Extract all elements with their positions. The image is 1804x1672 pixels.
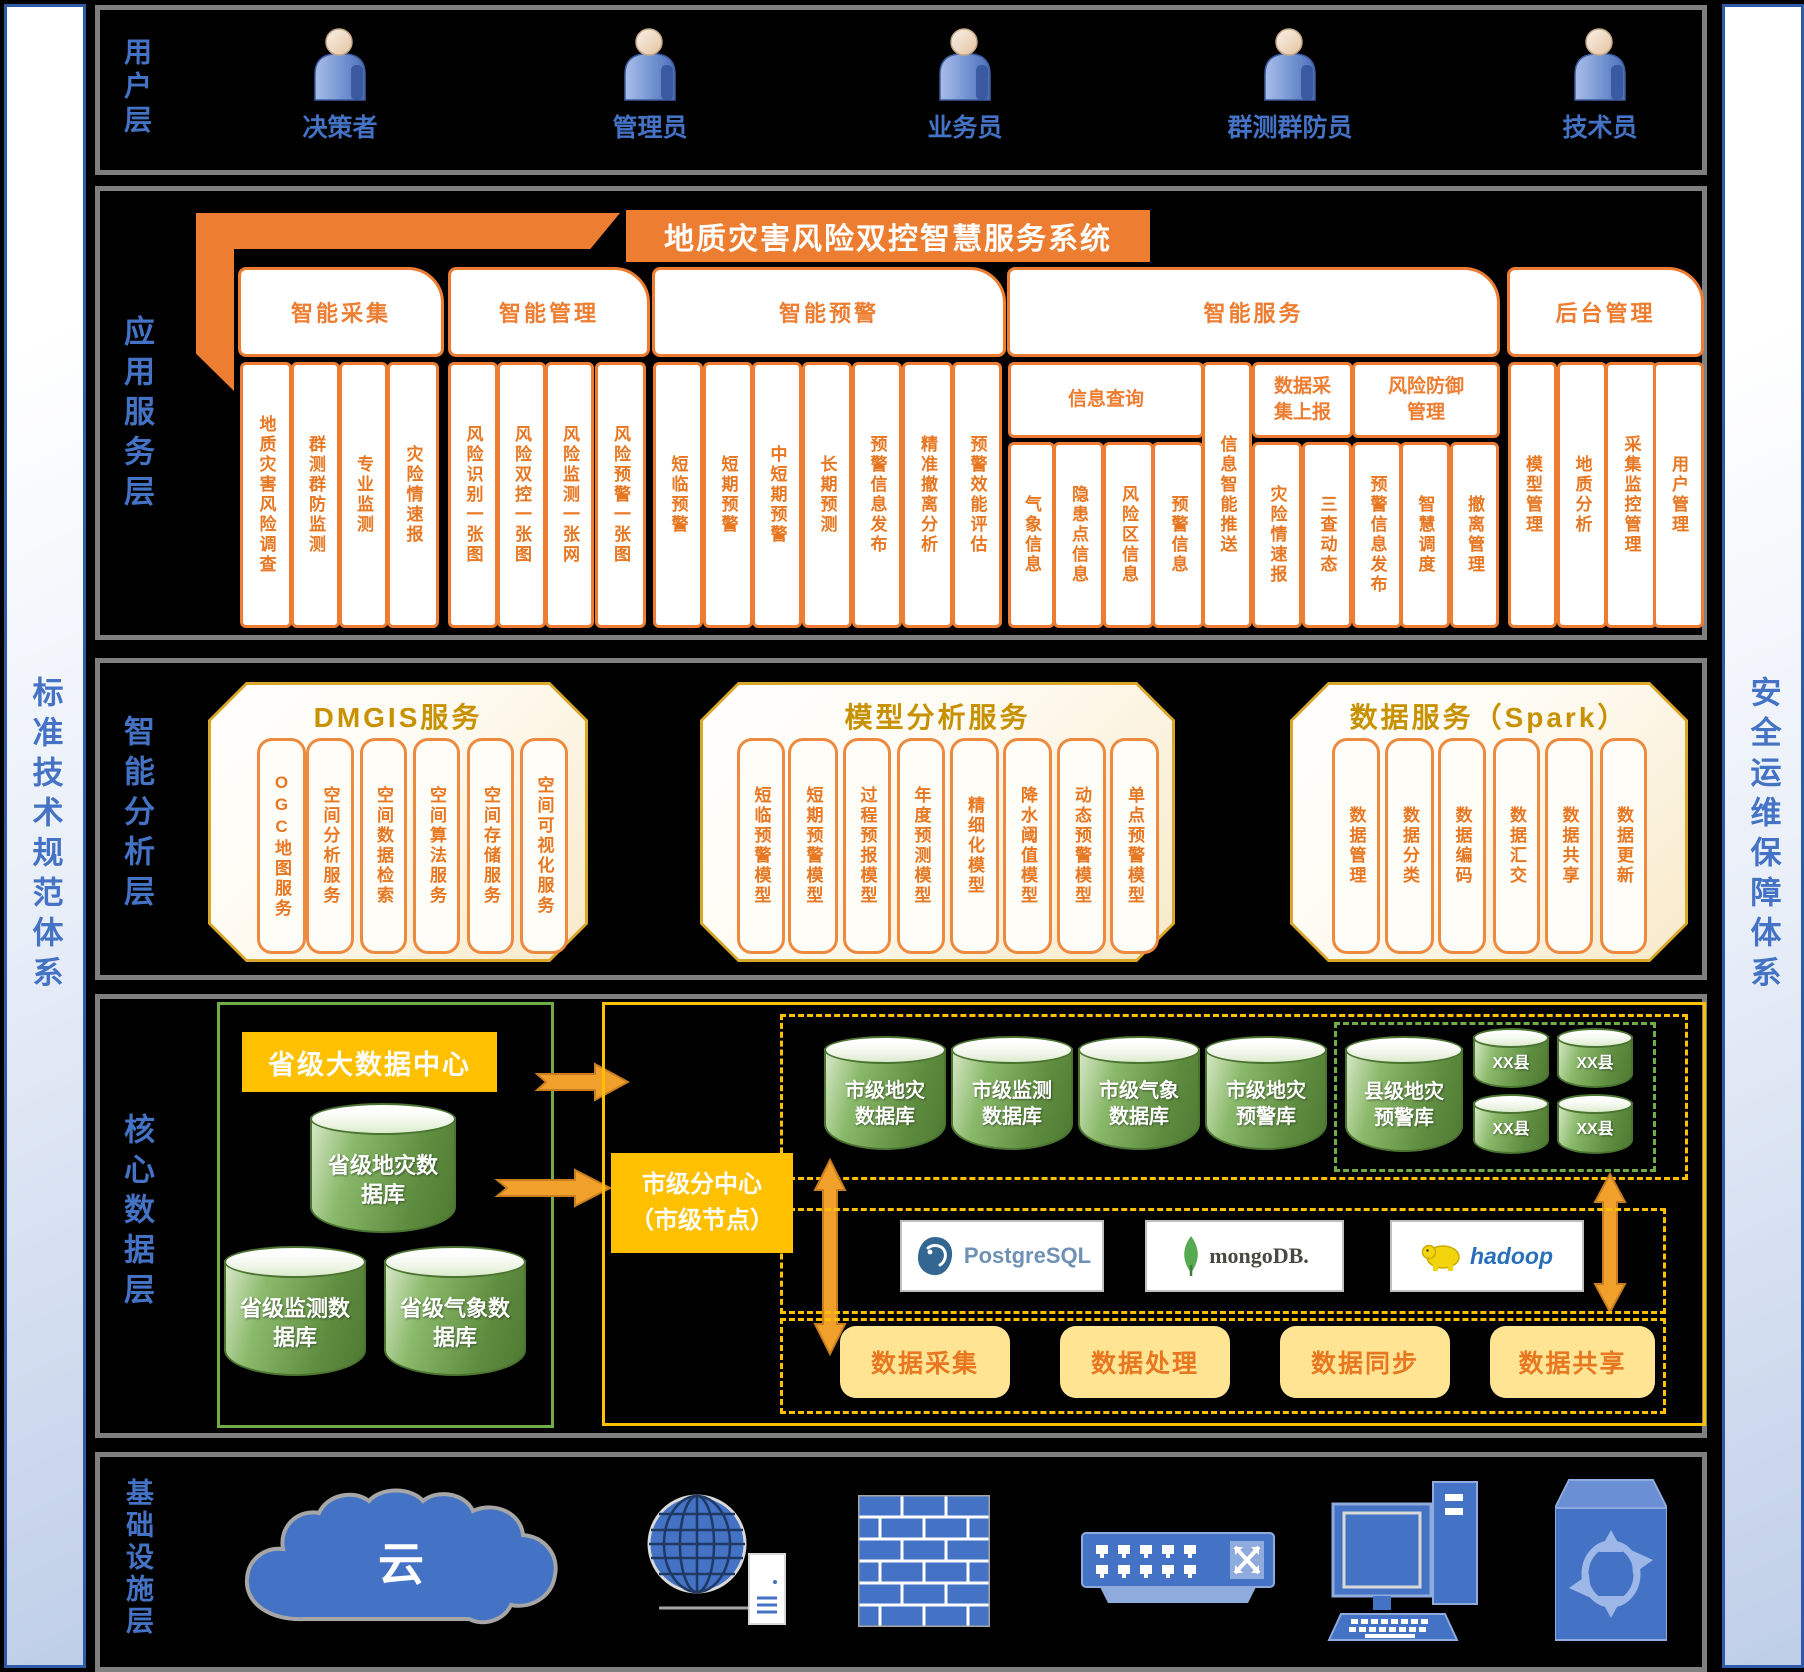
app-item-label: 地质灾害风险调查 [258, 415, 275, 575]
user-label: 决策者 [302, 108, 377, 144]
cylinder-top [1078, 1036, 1200, 1064]
data-layer-label: 核心数据层 [114, 1085, 159, 1340]
analysis-item: 动态预警模型 [1057, 738, 1106, 954]
app-item-label: 风险监测一张网 [561, 425, 578, 565]
analysis-item-label: 数据管理 [1348, 806, 1365, 886]
mongodb-logo: mongoDB. [1145, 1220, 1344, 1292]
tab-smart-warning: 智能预警 [652, 267, 1006, 357]
app-item-label: 气象信息 [1023, 495, 1040, 575]
user-operator: 业务员 [875, 28, 1055, 144]
cylinder-label: 省级监测数据库 [224, 1276, 366, 1372]
analysis-item: 过程预报模型 [843, 738, 891, 954]
app-item: 短临预警 [653, 362, 703, 628]
analysis-item: 精细化模型 [950, 738, 999, 954]
analysis-item-label: 空间可视化服务 [536, 776, 553, 916]
app-item: 用户管理 [1653, 362, 1704, 628]
cylinder-label: 县级地灾预警库 [1345, 1062, 1463, 1148]
panel-model-analysis-title: 模型分析服务 [700, 696, 1175, 736]
app-item: 信息智能推送 [1202, 362, 1252, 628]
app-item-label: 长期预测 [819, 455, 836, 535]
analysis-item: 短临预警模型 [737, 738, 785, 954]
analysis-item-label: 数据编码 [1454, 806, 1471, 886]
hadoop-elephant-icon [1421, 1240, 1463, 1272]
app-item: 长期预测 [802, 362, 852, 628]
left-sidebar: 标准技术规范体系 [4, 4, 86, 1668]
cylinder-label: XX县 [1473, 1042, 1549, 1086]
app-item-label: 撤离管理 [1466, 495, 1483, 575]
analysis-item-label: 空间分析服务 [322, 786, 339, 906]
analysis-item: 年度预测模型 [897, 738, 945, 954]
person-icon [1567, 28, 1633, 102]
analysis-item-label: 数据共享 [1561, 806, 1578, 886]
process-data-sync: 数据同步 [1280, 1326, 1450, 1398]
app-item: 模型管理 [1508, 362, 1557, 628]
app-item-label: 灾险情速报 [1269, 485, 1286, 585]
province-to-city-arrow-bottom [495, 1168, 613, 1213]
app-item: 风险监测一张网 [545, 362, 594, 628]
system-title-banner: 地质灾害风险双控智慧服务系统 [626, 210, 1150, 262]
right-sidebar-label: 安全运维保障体系 [1741, 676, 1786, 996]
cylinder-top [310, 1103, 456, 1135]
analysis-item-label: 短期预警模型 [805, 786, 822, 906]
city-geo-database-cylinder: 市级地灾数据库 [824, 1036, 946, 1150]
analysis-item-label: 精细化模型 [966, 796, 983, 896]
app-item: 风险识别一张图 [448, 362, 498, 628]
analysis-item-label: 动态预警模型 [1073, 786, 1090, 906]
analysis-item: 数据分类 [1385, 738, 1434, 954]
cylinder-label: 市级地灾数据库 [824, 1062, 946, 1146]
person-icon [932, 28, 998, 102]
analysis-item: 空间可视化服务 [520, 738, 568, 954]
person-icon [307, 28, 373, 102]
user-label: 群测群防员 [1227, 108, 1352, 144]
analysis-item: 数据管理 [1332, 738, 1380, 954]
cylinder-top [224, 1246, 366, 1278]
user-label: 业务员 [927, 108, 1002, 144]
analysis-item: 数据汇交 [1493, 738, 1540, 954]
app-item: 精准撤离分析 [902, 362, 953, 628]
analysis-item: 空间存储服务 [467, 738, 514, 954]
app-item-label: 短临预警 [670, 455, 687, 535]
globe-network-icon [645, 1490, 795, 1637]
left-sidebar-label: 标准技术规范体系 [23, 676, 68, 996]
app-item: 隐患点信息 [1053, 442, 1104, 628]
analysis-item: 短期预警模型 [788, 738, 838, 954]
app-item: 群测群防监测 [291, 362, 340, 628]
app-item-label: 信息智能推送 [1219, 435, 1236, 555]
postgresql-logo: PostgreSQL [900, 1220, 1104, 1292]
analysis-item-label: 数据分类 [1401, 806, 1418, 886]
city-warning-database-cylinder: 市级地灾预警库 [1205, 1036, 1327, 1150]
user-label: 管理员 [612, 108, 687, 144]
app-item-label: 智慧调度 [1417, 495, 1434, 575]
app-item: 智慧调度 [1400, 442, 1450, 628]
panel-data-service-title: 数据服务（Spark） [1290, 696, 1688, 736]
postgresql-elephant-icon [913, 1234, 957, 1278]
city-weather-database-cylinder: 市级气象数据库 [1078, 1036, 1200, 1150]
province-monitor-database-cylinder: 省级监测数据库 [224, 1246, 366, 1376]
tab-smart-collection: 智能采集 [238, 267, 444, 357]
app-item-label: 预警效能评估 [969, 435, 986, 555]
person-icon [617, 28, 683, 102]
analysis-item: 空间分析服务 [306, 738, 354, 954]
app-item-label: 预警信息发布 [869, 435, 886, 555]
app-item: 采集监控管理 [1605, 362, 1657, 628]
cylinder-top [951, 1036, 1073, 1064]
app-item: 预警信息 [1152, 442, 1204, 628]
app-item: 风险区信息 [1103, 442, 1154, 628]
architecture-diagram: 标准技术规范体系 安全运维保障体系 用户层 决策者 管理员 业务员 群测群防员 … [0, 0, 1804, 1672]
analysis-item-label: 数据更新 [1615, 806, 1632, 886]
subtab-data-report: 数据采集上报 [1252, 362, 1353, 438]
analysis-item-label: 降水阈值模型 [1019, 786, 1036, 906]
firewall-icon [858, 1495, 990, 1632]
app-item-label: 精准撤离分析 [919, 435, 936, 555]
tab-smart-management: 智能管理 [448, 267, 650, 357]
county-node-cylinder: XX县 [1557, 1028, 1633, 1088]
user-decision-maker: 决策者 [250, 28, 430, 144]
postgresql-label: PostgreSQL [964, 1243, 1091, 1269]
app-item-label: 三查动态 [1319, 495, 1336, 575]
city-subcenter-title: 市级分中心 [642, 1167, 762, 1203]
app-item-label: 用户管理 [1670, 455, 1687, 535]
app-item: 专业监测 [339, 362, 388, 628]
cylinder-label: XX县 [1557, 1042, 1633, 1086]
right-sidebar: 安全运维保障体系 [1722, 4, 1804, 1668]
analysis-item-label: 数据汇交 [1508, 806, 1525, 886]
app-item-label: 地质分析 [1574, 455, 1591, 535]
app-item-label: 隐患点信息 [1070, 485, 1087, 585]
app-item-label: 预警信息 [1170, 495, 1187, 575]
title-ribbon-horizontal [196, 213, 620, 249]
app-layer-label: 应用服务层 [114, 290, 159, 540]
app-item: 三查动态 [1302, 442, 1352, 628]
city-subcenter-subtitle: （市级节点） [630, 1203, 774, 1239]
city-subcenter-banner: 市级分中心 （市级节点） [611, 1153, 793, 1253]
subtab-label: 风险防御管理 [1380, 374, 1472, 425]
computer-icon [1325, 1478, 1483, 1651]
cloud-label: 云 [378, 1528, 424, 1594]
subtab-info-query: 信息查询 [1008, 362, 1204, 438]
app-item: 地质灾害风险调查 [240, 362, 292, 628]
app-item: 预警信息发布 [852, 362, 902, 628]
hadoop-logo: hadoop [1390, 1220, 1584, 1292]
app-item-label: 风险区信息 [1120, 485, 1137, 585]
province-center-banner: 省级大数据中心 [242, 1032, 497, 1092]
analysis-item-label: 空间存储服务 [482, 786, 499, 906]
county-node-cylinder: XX县 [1473, 1094, 1549, 1154]
app-item: 风险双控一张图 [497, 362, 546, 628]
panel-dmgis-title: DMGIS服务 [208, 696, 588, 736]
user-technician: 技术员 [1510, 28, 1690, 144]
user-administrator: 管理员 [560, 28, 740, 144]
tab-backend-management: 后台管理 [1507, 267, 1704, 357]
mongodb-label: mongoDB. [1209, 1243, 1309, 1269]
app-item: 中短期预警 [752, 362, 802, 628]
analysis-item-label: 空间数据检索 [375, 786, 392, 906]
analysis-item-label: 空间算法服务 [428, 786, 445, 906]
process-data-processing: 数据处理 [1060, 1326, 1230, 1398]
subtab-label: 数据采集上报 [1268, 374, 1338, 425]
app-item-label: 风险预警一张图 [612, 425, 629, 565]
app-item-label: 风险识别一张图 [465, 425, 482, 565]
user-label: 技术员 [1562, 108, 1637, 144]
router-icon [1555, 1478, 1667, 1647]
process-data-sharing: 数据共享 [1490, 1326, 1655, 1398]
analysis-item: 数据共享 [1545, 738, 1593, 954]
tab-smart-service: 智能服务 [1007, 267, 1500, 357]
switch-icon [1080, 1525, 1280, 1612]
county-node-cylinder: XX县 [1473, 1028, 1549, 1088]
app-item: 地质分析 [1557, 362, 1607, 628]
app-item-label: 采集监控管理 [1623, 435, 1640, 555]
user-monitoring-member: 群测群防员 [1200, 28, 1380, 144]
subtab-risk-defense: 风险防御管理 [1352, 362, 1500, 438]
app-item: 灾险情速报 [387, 362, 439, 628]
app-item-label: 中短期预警 [769, 445, 786, 545]
city-monitor-database-cylinder: 市级监测数据库 [951, 1036, 1073, 1150]
analysis-layer-label: 智能分析层 [114, 690, 159, 940]
analysis-item: OGC地图服务 [257, 738, 306, 954]
app-item: 预警信息发布 [1352, 442, 1402, 628]
analysis-item-label: 短临预警模型 [753, 786, 770, 906]
analysis-item-label: OGC地图服务 [273, 773, 290, 919]
province-weather-database-cylinder: 省级气象数据库 [384, 1246, 526, 1376]
app-item-label: 群测群防监测 [307, 435, 324, 555]
cylinder-top [1345, 1036, 1463, 1064]
cylinder-label: XX县 [1473, 1108, 1549, 1152]
app-item-label: 模型管理 [1524, 455, 1541, 535]
cylinder-top [1205, 1036, 1327, 1064]
cylinder-label: 省级气象数据库 [384, 1276, 526, 1372]
app-item-label: 风险双控一张图 [513, 425, 530, 565]
app-item-label: 短期预警 [720, 455, 737, 535]
province-geo-database-cylinder: 省级地灾数据库 [310, 1103, 456, 1233]
user-layer-label: 用户层 [116, 22, 156, 154]
analysis-item: 降水阈值模型 [1003, 738, 1052, 954]
analysis-item: 数据编码 [1438, 738, 1486, 954]
cylinder-label: 市级地灾预警库 [1205, 1062, 1327, 1146]
analysis-item-label: 年度预测模型 [913, 786, 930, 906]
county-node-cylinder: XX县 [1557, 1094, 1633, 1154]
app-item: 气象信息 [1008, 442, 1055, 628]
person-icon [1257, 28, 1323, 102]
app-item: 灾险情速报 [1252, 442, 1302, 628]
mongodb-leaf-icon [1180, 1235, 1202, 1277]
analysis-item: 空间数据检索 [360, 738, 407, 954]
app-item: 风险预警一张图 [595, 362, 646, 628]
analysis-item: 空间算法服务 [413, 738, 460, 954]
app-item-label: 灾险情速报 [405, 445, 422, 545]
app-item: 撤离管理 [1450, 442, 1499, 628]
cylinder-label: XX县 [1557, 1108, 1633, 1152]
analysis-item: 数据更新 [1600, 738, 1647, 954]
analysis-item: 单点预警模型 [1110, 738, 1159, 954]
county-warning-database-cylinder: 县级地灾预警库 [1345, 1036, 1463, 1152]
analysis-item-label: 单点预警模型 [1126, 786, 1143, 906]
app-item-label: 专业监测 [355, 455, 372, 535]
cylinder-top [824, 1036, 946, 1064]
cylinder-label: 省级地灾数据库 [310, 1133, 456, 1229]
app-item: 预警效能评估 [952, 362, 1002, 628]
app-item: 短期预警 [703, 362, 753, 628]
app-item-label: 预警信息发布 [1369, 475, 1386, 595]
process-data-collection: 数据采集 [840, 1326, 1010, 1398]
hadoop-label: hadoop [1470, 1243, 1553, 1270]
cylinder-label: 市级气象数据库 [1078, 1062, 1200, 1146]
infra-layer-label: 基础设施层 [118, 1468, 158, 1648]
cylinder-label: 市级监测数据库 [951, 1062, 1073, 1146]
cylinder-top [384, 1246, 526, 1278]
analysis-item-label: 过程预报模型 [859, 786, 876, 906]
